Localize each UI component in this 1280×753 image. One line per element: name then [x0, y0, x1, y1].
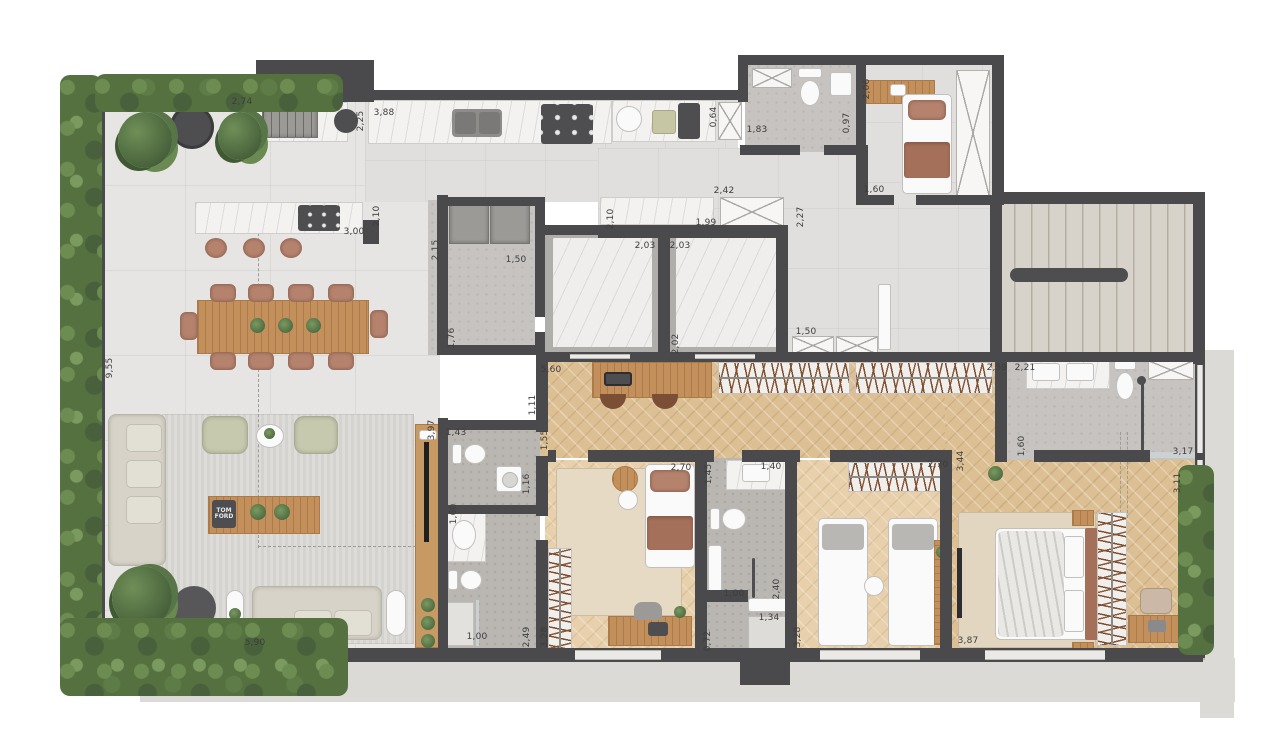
dimension-label: 2,10	[372, 206, 382, 227]
dimension-label: 3,28	[793, 627, 803, 648]
dimension-label: 5,60	[541, 365, 562, 375]
dimension-label: 3,00	[344, 227, 365, 237]
dimension-label: 2,03	[635, 241, 656, 251]
dimension-label: 3,88	[374, 108, 395, 118]
dimension-label: 9,55	[105, 358, 115, 379]
dimension-label: 2,27	[796, 207, 806, 228]
dimension-label: 3,28	[540, 627, 550, 648]
dimension-label: 3,17	[1173, 447, 1194, 457]
dimension-label: 1,34	[759, 613, 780, 623]
dimension-label: 1,00	[724, 589, 745, 599]
dimension-label: 1,45	[704, 464, 714, 485]
floor-plan: TOM FORD	[0, 0, 1280, 753]
dimension-label: 3,87	[958, 636, 979, 646]
dimension-label: 1,60	[864, 185, 885, 195]
dimension-label: 2,15	[431, 240, 441, 261]
dimension-label: 2,42	[714, 186, 735, 196]
dimension-label: 3,11	[1173, 473, 1183, 494]
dimension-label: 3,97	[427, 420, 437, 441]
dimension-label: 2,70	[671, 463, 692, 473]
dimension-label: 1,83	[747, 125, 768, 135]
dimension-label: 2,03	[670, 241, 691, 251]
dimension-label: 2,25	[356, 111, 366, 132]
dimension-label: 3,44	[956, 451, 966, 472]
dimension-label: 1,40	[761, 462, 782, 472]
dimension-label: 0,64	[709, 107, 719, 128]
dimension-label: 1,11	[528, 395, 538, 416]
dimension-label: 1,00	[467, 632, 488, 642]
dimension-label: 2,06	[862, 79, 872, 100]
dimension-label: 1,43	[446, 428, 467, 438]
dimension-label: 5,90	[245, 638, 266, 648]
dimension-label: 1,76	[447, 328, 457, 349]
dimension-label: 2,59	[987, 363, 1008, 373]
dimension-label: 1,50	[796, 327, 817, 337]
dimension-label: 2,74	[232, 97, 253, 107]
dimension-label: 2,21	[1015, 363, 1036, 373]
dimension-label: 1,99	[696, 218, 717, 228]
dimension-label: 2,70	[928, 460, 949, 470]
dimension-label: 1,50	[506, 255, 527, 265]
dimension-label: 1,60	[449, 504, 459, 525]
dimension-label: 1,55	[540, 430, 550, 451]
dimension-label: 1,60	[1017, 436, 1027, 457]
dimension-label: 2,10	[606, 209, 616, 230]
dimension-label: 2,40	[772, 579, 782, 600]
dimension-label: 2,49	[522, 627, 532, 648]
dimension-labels: 2,742,253,883,002,102,151,501,762,101,99…	[0, 0, 1280, 753]
dimension-label: 0,97	[842, 113, 852, 134]
dimension-label: 2,02	[671, 334, 681, 355]
dimension-label: 1,16	[522, 474, 532, 495]
dimension-label: 0,72	[703, 631, 713, 652]
